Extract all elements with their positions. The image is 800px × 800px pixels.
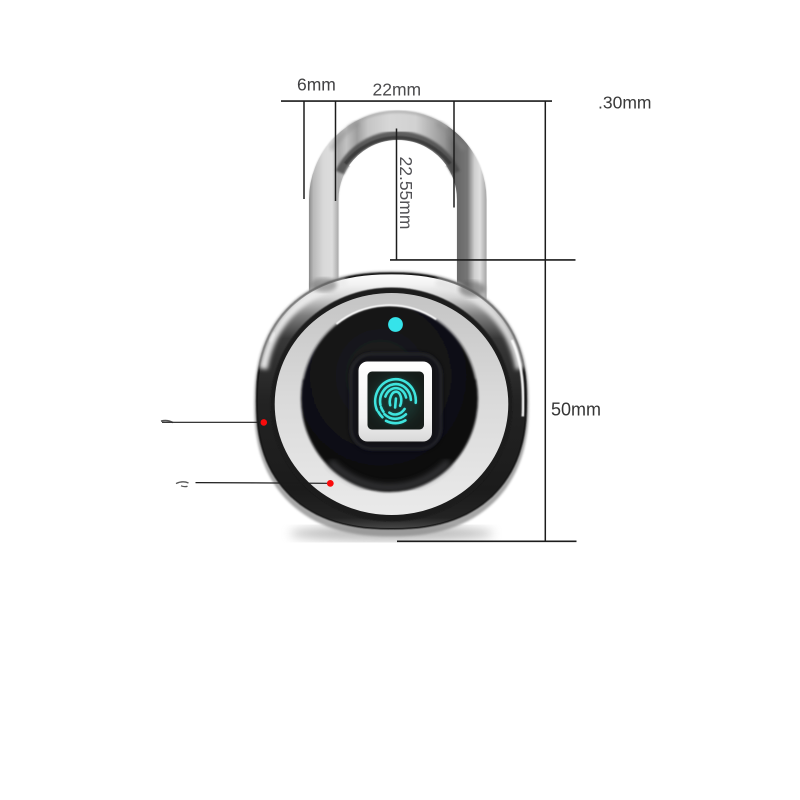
svg-text:6mm: 6mm: [297, 75, 336, 95]
svg-text:.30mm: .30mm: [598, 93, 651, 113]
svg-text:22.55mm: 22.55mm: [396, 157, 416, 230]
svg-text:22mm: 22mm: [373, 80, 422, 100]
svg-text:50mm: 50mm: [551, 400, 601, 420]
